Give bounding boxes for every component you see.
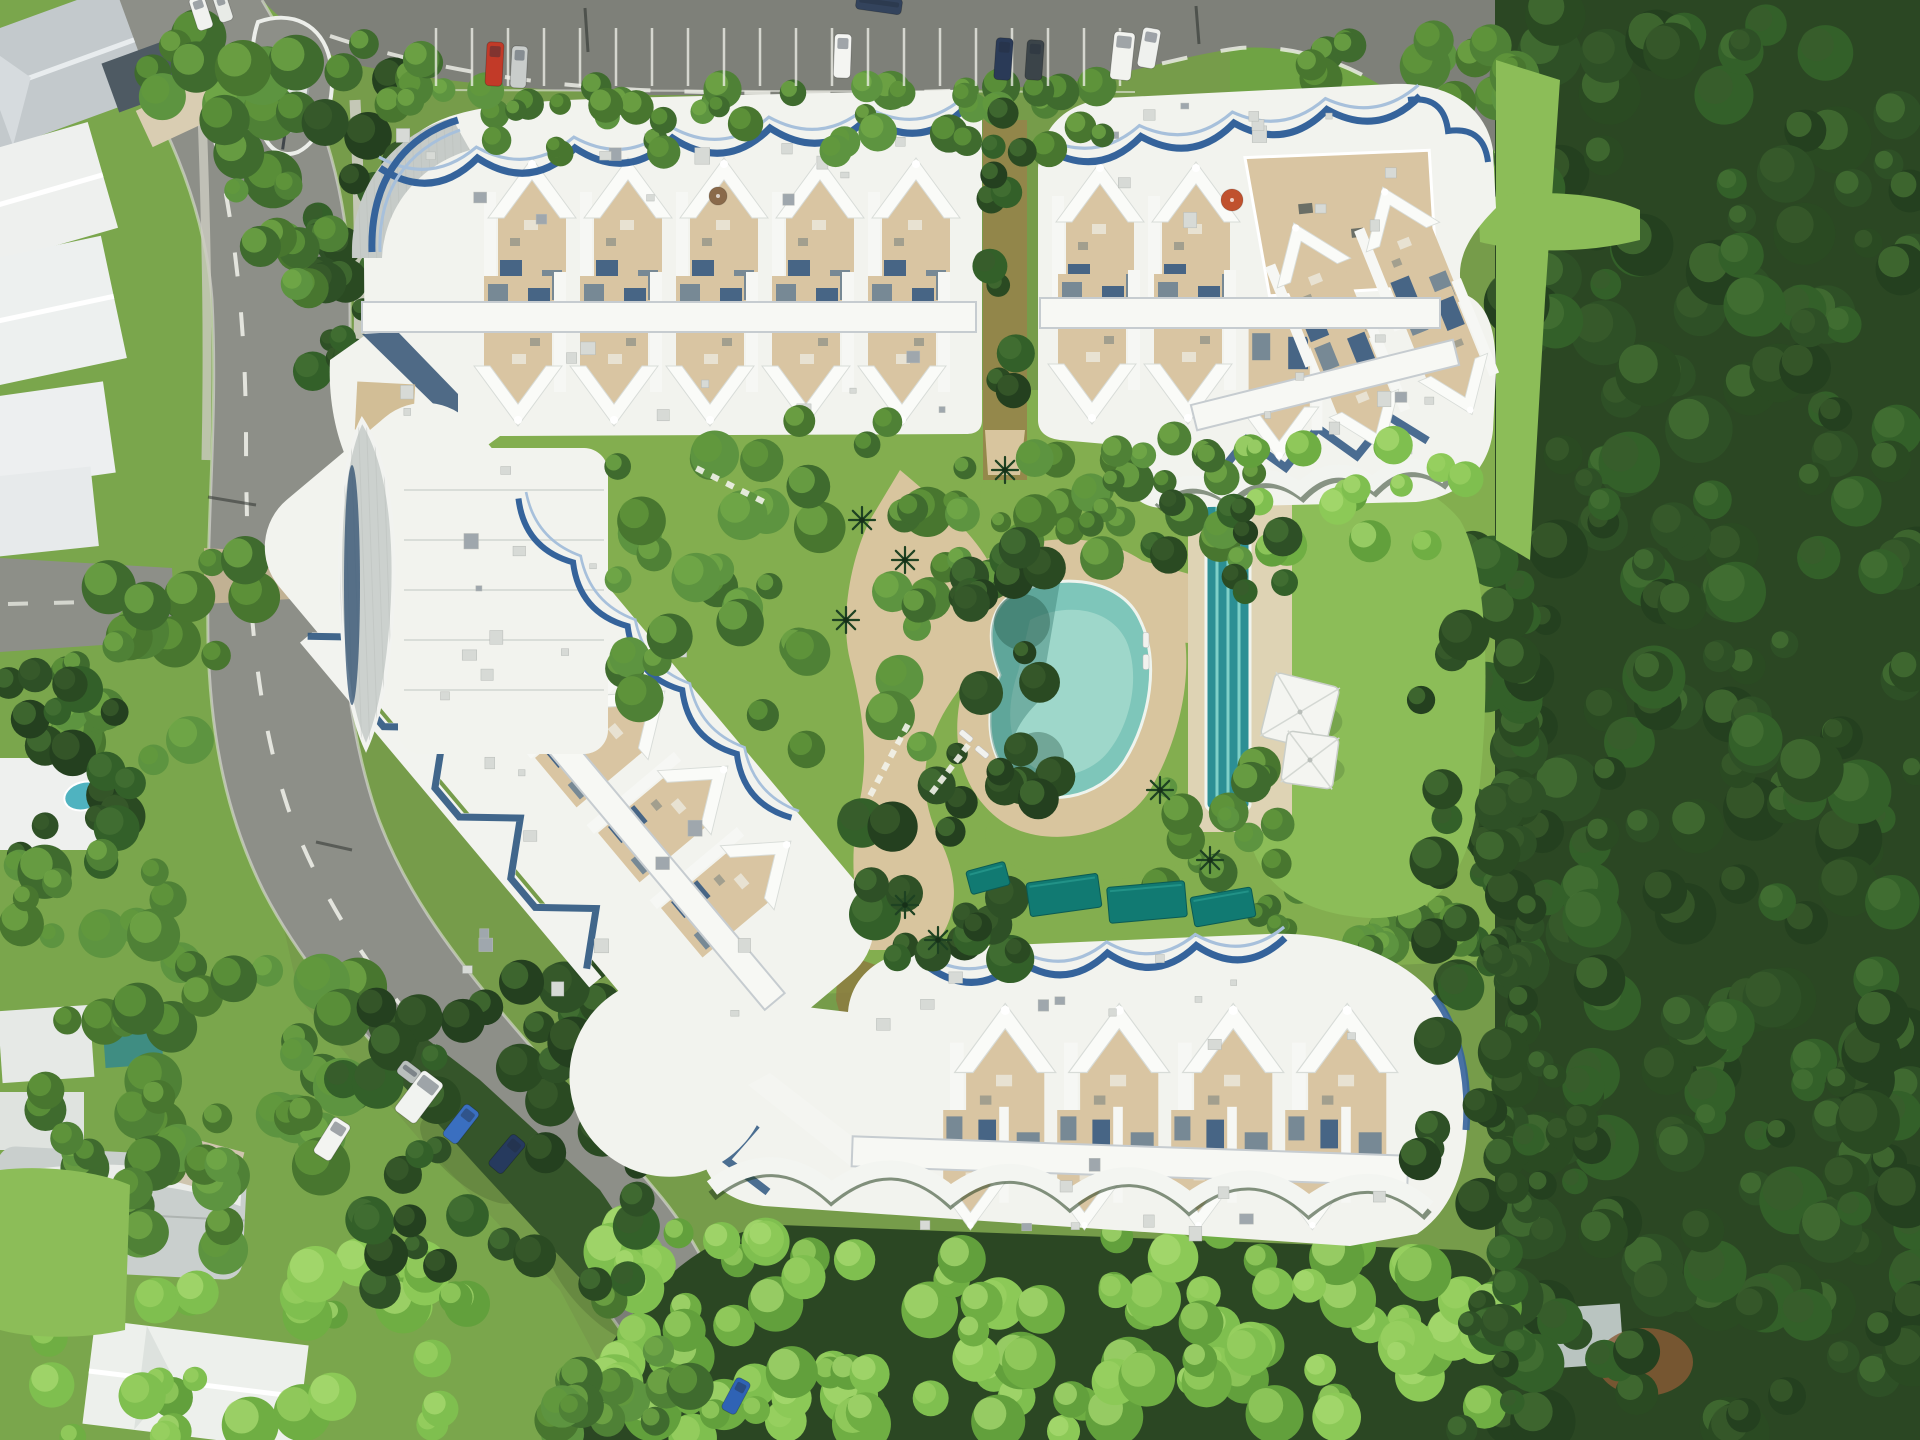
tree-canopy-highlight [1408, 687, 1425, 704]
tree-canopy-highlight [1485, 1139, 1510, 1164]
tree-canopy-highlight [1079, 69, 1103, 93]
tree-canopy-highlight [1566, 1106, 1586, 1126]
tree-canopy-highlight [310, 1375, 339, 1404]
tree-canopy-highlight [1728, 1400, 1749, 1421]
tree-canopy-highlight [1696, 1104, 1715, 1123]
tree-canopy-highlight [1878, 246, 1909, 277]
tree-canopy-highlight [757, 574, 773, 590]
tree-canopy-highlight [1306, 1356, 1325, 1375]
reception-roof [398, 448, 608, 754]
tree-canopy-highlight [316, 991, 350, 1025]
tree-canopy-highlight [1839, 1093, 1877, 1131]
tree-canopy-highlight [88, 754, 111, 777]
tree-canopy-highlight [1547, 1118, 1567, 1138]
tree-canopy-highlight [1001, 529, 1026, 554]
tree-canopy-highlight [1413, 921, 1440, 948]
tree-canopy-highlight [29, 1074, 52, 1097]
roof-vent [580, 342, 595, 355]
roof-vent [1373, 1191, 1385, 1202]
tree-canopy-highlight [642, 1408, 659, 1425]
tree-canopy-highlight [649, 137, 669, 157]
tree-canopy-highlight [1767, 1120, 1785, 1138]
tree-canopy-highlight [88, 840, 107, 859]
tree-canopy-highlight [749, 1222, 771, 1244]
tree-canopy-highlight [33, 814, 49, 830]
tree-canopy-highlight [963, 1284, 988, 1309]
tree-canopy-highlight [1401, 1140, 1427, 1166]
roof-vent [738, 938, 750, 952]
tree-canopy-highlight [1315, 1395, 1344, 1424]
palm-tree [1197, 847, 1223, 873]
tree-canopy-highlight [1509, 987, 1527, 1005]
tree-canopy-highlight [177, 953, 196, 972]
roof-vent [939, 407, 945, 413]
roof-vent [501, 467, 511, 475]
tree-canopy-highlight [151, 883, 173, 905]
roof-vent [657, 410, 669, 421]
tree-canopy-highlight [997, 375, 1018, 396]
tree-canopy-highlight [692, 101, 707, 116]
tree-canopy-highlight [1159, 423, 1179, 443]
roof-vent [551, 982, 563, 996]
tree-canopy-highlight [1607, 719, 1637, 749]
tree-canopy-highlight [407, 1142, 424, 1159]
tree-canopy-highlight [547, 138, 559, 150]
tree-canopy-highlight [852, 1356, 876, 1380]
tree-canopy-highlight [1020, 780, 1045, 805]
tree-canopy-highlight [606, 568, 622, 584]
tree-canopy-highlight [1493, 1352, 1509, 1368]
roof-vent [1370, 220, 1379, 231]
tree-canopy-highlight [1708, 565, 1744, 601]
tree-canopy-highlight [1668, 399, 1709, 440]
tree-canopy-highlight [498, 1046, 527, 1075]
tree-canopy-highlight [1488, 1236, 1510, 1258]
tree-canopy-highlight [1825, 1157, 1853, 1185]
tree-canopy-highlight [177, 1273, 203, 1299]
tree-canopy-highlight [1595, 758, 1615, 778]
tree-canopy-highlight [142, 860, 159, 877]
tree-canopy-highlight [1160, 491, 1176, 507]
roof-vent [1377, 391, 1390, 406]
tree-canopy-highlight [1094, 1361, 1122, 1389]
tree-canopy-highlight [669, 1365, 697, 1393]
tree-canopy-highlight [140, 746, 158, 764]
tree-canopy-highlight [102, 699, 119, 716]
tree-canopy-highlight [1800, 28, 1833, 61]
tree-canopy-highlight [705, 1224, 727, 1246]
tree-canopy-highlight [124, 584, 153, 613]
roof-vent [647, 195, 655, 201]
tree-canopy-highlight [1470, 1292, 1486, 1308]
tree-canopy-highlight [1464, 1090, 1485, 1111]
tree-canopy-highlight [965, 914, 982, 931]
tree-canopy-highlight [1619, 344, 1658, 383]
tree-canopy-highlight [1444, 906, 1466, 928]
tree-canopy-highlight [1130, 1275, 1162, 1307]
tree-canopy-highlight [1576, 469, 1593, 486]
tree-canopy-highlight [856, 869, 877, 890]
tree-canopy-highlight [855, 433, 871, 449]
tree-canopy-highlight [354, 1204, 380, 1230]
roof-vent [1425, 397, 1434, 404]
roof-vent [1249, 111, 1259, 121]
tree-canopy-highlight [104, 632, 123, 651]
roof-vent [462, 650, 477, 660]
tree-canopy-highlight [1014, 642, 1028, 656]
tree-canopy-highlight [84, 563, 117, 596]
roof-vent [907, 351, 920, 363]
roof-vent [1184, 212, 1197, 227]
tree-canopy-highlight [989, 99, 1008, 118]
tree-canopy-highlight [790, 733, 813, 756]
tree-canopy-highlight [1646, 25, 1680, 59]
tree-canopy-highlight [1820, 399, 1840, 419]
roof-vent [600, 151, 612, 160]
tree-canopy-highlight [836, 1241, 861, 1266]
tree-canopy-highlight [1564, 1067, 1589, 1092]
tree-canopy-highlight [1858, 992, 1891, 1025]
tree-canopy-highlight [1498, 1173, 1518, 1193]
tree-canopy-highlight [424, 1392, 446, 1414]
roof-vent [841, 172, 849, 178]
roof-vent [876, 1018, 890, 1030]
tree-canopy-highlight [13, 702, 36, 725]
tree-canopy-highlight [1343, 476, 1360, 493]
tree-canopy-highlight [1505, 1331, 1524, 1350]
tree-canopy-highlight [903, 590, 924, 611]
tree-canopy-highlight [397, 997, 426, 1026]
tree-canopy-highlight [1721, 866, 1745, 890]
tree-canopy-highlight [1581, 1211, 1611, 1241]
tree-canopy-highlight [282, 269, 301, 288]
tree-canopy-highlight [743, 1397, 760, 1414]
tree-canopy-highlight [888, 877, 910, 899]
tree-canopy-highlight [693, 433, 722, 462]
roof-vent [479, 938, 493, 951]
tree-canopy-highlight [789, 467, 815, 493]
roof-vent [1144, 110, 1155, 121]
tree-canopy-highlight [1009, 139, 1026, 156]
tree-canopy-highlight [1746, 1122, 1763, 1139]
tree-canopy-highlight [1476, 831, 1504, 859]
tree-canopy-highlight [289, 1098, 310, 1119]
tree-canopy-highlight [1706, 1001, 1736, 1031]
tree-canopy-highlight [1891, 652, 1916, 677]
roof-vent [590, 564, 597, 569]
tree-canopy-highlight [1484, 946, 1502, 964]
tree-canopy-highlight [397, 89, 414, 106]
tree-canopy-highlight [218, 43, 252, 77]
vehicle [1110, 31, 1136, 81]
tree-canopy-highlight [347, 114, 376, 143]
tree-canopy-highlight [665, 1220, 683, 1238]
roof-vent [566, 353, 576, 364]
tree-canopy-highlight [1248, 1388, 1283, 1423]
tree-canopy-highlight [1729, 206, 1746, 223]
tree-canopy-highlight [1829, 1342, 1849, 1362]
tree-canopy-highlight [1576, 957, 1607, 988]
tree-canopy-highlight [1546, 437, 1569, 460]
tree-canopy-highlight [1412, 839, 1442, 869]
tree-canopy-highlight [1705, 642, 1724, 661]
roof-vent [1143, 1215, 1154, 1227]
tree-canopy-highlight [1321, 489, 1343, 511]
roof-vent [481, 669, 493, 680]
tree-canopy-highlight [1093, 499, 1108, 514]
tree-canopy-highlight [1397, 1247, 1431, 1281]
tree-canopy-highlight [1682, 1211, 1708, 1237]
tree-canopy-highlight [1827, 1068, 1845, 1086]
tree-canopy-highlight [580, 1269, 600, 1289]
tree-canopy-highlight [1248, 439, 1262, 453]
tree-canopy-highlight [282, 1039, 302, 1059]
tree-canopy-highlight [14, 886, 30, 902]
spine-north-east [1040, 298, 1440, 328]
tree-canopy-highlight [1477, 786, 1507, 816]
tree-canopy-highlight [1514, 1125, 1533, 1144]
tree-canopy-highlight [1543, 1065, 1558, 1080]
tree-canopy-highlight [1265, 519, 1289, 543]
tree-canopy-highlight [130, 911, 162, 943]
tree-canopy-highlight [992, 513, 1004, 525]
roof-vent [464, 533, 478, 548]
tree-canopy-highlight [1799, 464, 1819, 484]
tree-canopy-highlight [1877, 1167, 1916, 1206]
tree-canopy-highlight [878, 657, 907, 686]
aerial-scene [0, 0, 1920, 1440]
tree-canopy-highlight [1891, 172, 1917, 198]
tree-canopy-highlight [611, 639, 635, 663]
roof-vent [1218, 1187, 1229, 1199]
roof-vent [1375, 335, 1385, 342]
tree-canopy-highlight [954, 586, 977, 609]
tree-canopy-highlight [326, 55, 349, 78]
tree-canopy-highlight [1121, 1353, 1155, 1387]
tree-canopy-highlight [1263, 809, 1283, 829]
tree-canopy-highlight [1152, 538, 1174, 560]
tree-canopy-highlight [52, 732, 80, 760]
tree-canopy-highlight [590, 90, 611, 111]
tree-canopy-highlight [1695, 482, 1718, 505]
tree-canopy-highlight [1770, 1379, 1793, 1402]
roof-vent [920, 1221, 930, 1230]
roof-vent [1118, 178, 1130, 188]
tree-canopy-highlight [1376, 428, 1399, 451]
tree-canopy-highlight [1417, 1113, 1438, 1134]
tree-canopy-highlight [874, 573, 899, 598]
tree-canopy-highlight [115, 985, 146, 1016]
tree-canopy-highlight [151, 1422, 170, 1440]
aerial-photo-resort [0, 0, 1920, 1440]
tree-canopy-highlight [730, 108, 751, 129]
tree-canopy-highlight [606, 454, 622, 470]
tree-canopy-highlight [1448, 1416, 1467, 1435]
tree-canopy-highlight [84, 1001, 112, 1029]
palm-tree [1147, 777, 1173, 803]
tree-canopy-highlight [1480, 1029, 1511, 1060]
sun-lounger [1143, 655, 1149, 670]
tree-canopy-highlight [207, 1209, 230, 1232]
tree-canopy-highlight [1799, 538, 1825, 564]
spine-north-west [362, 302, 976, 332]
tree-canopy-highlight [983, 136, 998, 151]
tree-canopy-highlight [127, 1138, 160, 1171]
roof-vent [1315, 204, 1326, 213]
roof-vent [1231, 980, 1237, 986]
tree-canopy-highlight [1731, 715, 1763, 747]
tree-canopy-highlight [52, 1123, 72, 1143]
tree-canopy-highlight [501, 962, 528, 989]
tree-canopy-highlight [1494, 1271, 1516, 1293]
roof-vent [1195, 996, 1202, 1002]
roof-vent [513, 546, 526, 556]
tree-canopy-highlight [932, 554, 950, 572]
tree-canopy-highlight [651, 108, 667, 124]
tree-canopy-highlight [206, 1149, 227, 1170]
roof-vent [400, 385, 413, 399]
tree-canopy-highlight [1627, 810, 1647, 830]
tree-canopy-highlight [1532, 522, 1567, 557]
roof-vent [1296, 373, 1304, 381]
tree-canopy-highlight [45, 699, 62, 716]
tree-canopy-highlight [20, 660, 41, 681]
tree-canopy-highlight [1150, 1235, 1180, 1265]
tree-canopy-highlight [314, 217, 336, 239]
tree-canopy-highlight [1659, 1126, 1688, 1155]
tree-canopy-highlight [1740, 1173, 1761, 1194]
tree-canopy-highlight [141, 75, 169, 103]
tree-canopy-highlight [1416, 22, 1440, 46]
tree-canopy-highlight [1223, 565, 1239, 581]
tree-canopy-highlight [213, 958, 241, 986]
tree-canopy-highlight [1793, 1069, 1813, 1089]
tree-canopy-highlight [331, 327, 347, 343]
tree-canopy-highlight [1441, 612, 1472, 643]
tree-canopy-highlight [1592, 270, 1610, 288]
tree-canopy-highlight [1563, 1170, 1578, 1185]
tree-canopy-highlight [621, 92, 642, 113]
tree-canopy-highlight [425, 1250, 445, 1270]
tree-canopy-highlight [1687, 1069, 1717, 1099]
tree-canopy-highlight [1634, 1263, 1668, 1297]
tree-canopy-highlight [1100, 1276, 1120, 1296]
vehicle [833, 34, 852, 79]
tree-canopy-highlight [1827, 308, 1849, 330]
roof-vent [490, 631, 503, 645]
tree-canopy-highlight [1079, 512, 1094, 527]
tree-canopy-highlight [96, 807, 124, 835]
tree-canopy-highlight [1867, 1312, 1888, 1333]
tree-canopy-highlight [1294, 1270, 1314, 1290]
tree-canopy-highlight [768, 1349, 799, 1380]
tree-canopy-highlight [31, 1365, 58, 1392]
tree-canopy-highlight [1154, 471, 1168, 485]
tree-canopy-highlight [870, 804, 900, 834]
tree-canopy-highlight [1272, 570, 1288, 586]
tree-canopy-highlight [415, 1342, 438, 1365]
tree-canopy-highlight [506, 100, 519, 113]
tree-canopy-highlight [1876, 93, 1905, 122]
tree-canopy-highlight [1736, 1288, 1763, 1315]
tree-canopy-highlight [1590, 490, 1609, 509]
roof-vent [949, 972, 963, 983]
umbrella-pole [716, 194, 720, 198]
tree-canopy-highlight [1181, 1303, 1208, 1330]
tree-canopy-highlight [1082, 538, 1108, 564]
tree-canopy-highlight [848, 1394, 872, 1418]
tree-canopy-highlight [1465, 1387, 1491, 1413]
tree-canopy-highlight [1018, 1287, 1047, 1316]
roof-vent [920, 999, 934, 1009]
tree-canopy-highlight [908, 733, 926, 751]
palm-tree [892, 547, 918, 573]
tree-canopy-highlight [340, 165, 359, 184]
roof-vent [896, 137, 906, 146]
tree-canopy-highlight [751, 1279, 784, 1312]
tree-canopy-highlight [560, 1395, 578, 1413]
tree-canopy-highlight [1055, 1383, 1077, 1405]
tree-canopy-highlight [797, 504, 828, 535]
tree-canopy-highlight [1057, 517, 1074, 534]
tree-canopy-highlight [709, 97, 722, 110]
palm-tree [849, 507, 875, 533]
tree-canopy-highlight [719, 601, 748, 630]
tree-canopy-highlight [954, 127, 972, 145]
tree-canopy-highlight [423, 1046, 439, 1062]
tree-canopy-highlight [1163, 795, 1188, 820]
roof-vent [485, 757, 495, 769]
roof-vent [426, 152, 435, 160]
tree-canopy-highlight [326, 1062, 349, 1085]
roof-vent [1385, 168, 1396, 178]
tree-canopy-highlight [184, 1368, 199, 1383]
tree-canopy-highlight [1760, 885, 1783, 908]
tree-canopy-highlight [1092, 125, 1106, 139]
lawn-bottomleft [0, 1168, 130, 1337]
tree-canopy-highlight [525, 1013, 544, 1032]
roof-vent [1181, 103, 1189, 109]
tree-canopy-highlight [1644, 1047, 1674, 1077]
shade-tarp [1107, 881, 1188, 924]
tree-canopy-highlight [915, 1382, 937, 1404]
tree-canopy-highlight [1652, 505, 1680, 533]
tree-canopy-highlight [621, 1183, 642, 1204]
vehicle [510, 46, 528, 89]
tree-canopy-highlight [1821, 860, 1857, 896]
tree-canopy-highlight [644, 1337, 663, 1356]
tree-canopy-highlight [674, 555, 704, 585]
roof-vent [1155, 955, 1164, 963]
roof-vent [656, 857, 670, 870]
tree-canopy-highlight [1747, 6, 1772, 31]
tree-canopy-highlight [405, 43, 427, 65]
tree-canopy-highlight [620, 499, 649, 528]
tree-canopy-highlight [1234, 521, 1249, 536]
tree-canopy-highlight [1449, 463, 1471, 485]
tree-canopy-highlight [371, 1025, 400, 1054]
tree-canopy-highlight [1188, 1278, 1209, 1299]
tree-canopy-highlight [1104, 471, 1117, 484]
tree-canopy-highlight [223, 538, 252, 567]
tree-canopy-highlight [582, 74, 600, 92]
tree-canopy-highlight [1268, 915, 1281, 928]
umbrella-pole [1230, 198, 1234, 202]
roof-vent [1329, 422, 1340, 434]
tree-canopy-highlight [1587, 1342, 1610, 1365]
tree-canopy-highlight [1416, 1019, 1445, 1048]
tree-canopy-highlight [1440, 966, 1468, 994]
